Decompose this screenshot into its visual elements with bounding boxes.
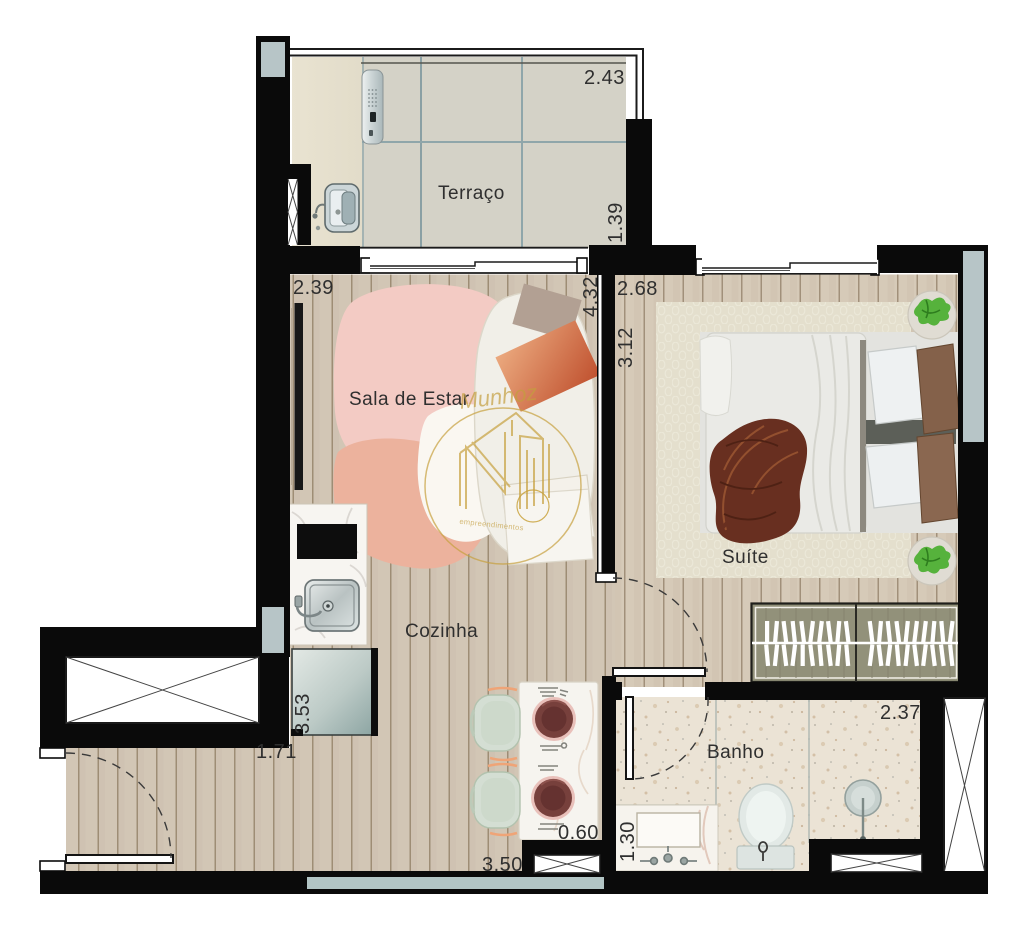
svg-text:3.50: 3.50: [482, 854, 523, 876]
svg-text:Cozinha: Cozinha: [405, 621, 478, 642]
svg-text:Suíte: Suíte: [722, 547, 769, 568]
svg-text:2.68: 2.68: [617, 278, 658, 300]
svg-text:2.37: 2.37: [880, 702, 921, 724]
svg-text:3.53: 3.53: [292, 693, 314, 734]
svg-text:1.30: 1.30: [617, 821, 639, 862]
svg-text:3.12: 3.12: [615, 327, 637, 368]
svg-text:0.60: 0.60: [558, 822, 599, 844]
svg-text:Sala de Estar: Sala de Estar: [349, 389, 470, 410]
svg-text:1.71: 1.71: [256, 741, 297, 763]
svg-text:2.39: 2.39: [293, 277, 334, 299]
svg-text:Terraço: Terraço: [438, 183, 505, 204]
svg-text:1.39: 1.39: [605, 202, 627, 243]
svg-text:2.43: 2.43: [584, 67, 625, 89]
svg-text:4.32: 4.32: [580, 276, 602, 317]
svg-text:Banho: Banho: [707, 742, 764, 763]
